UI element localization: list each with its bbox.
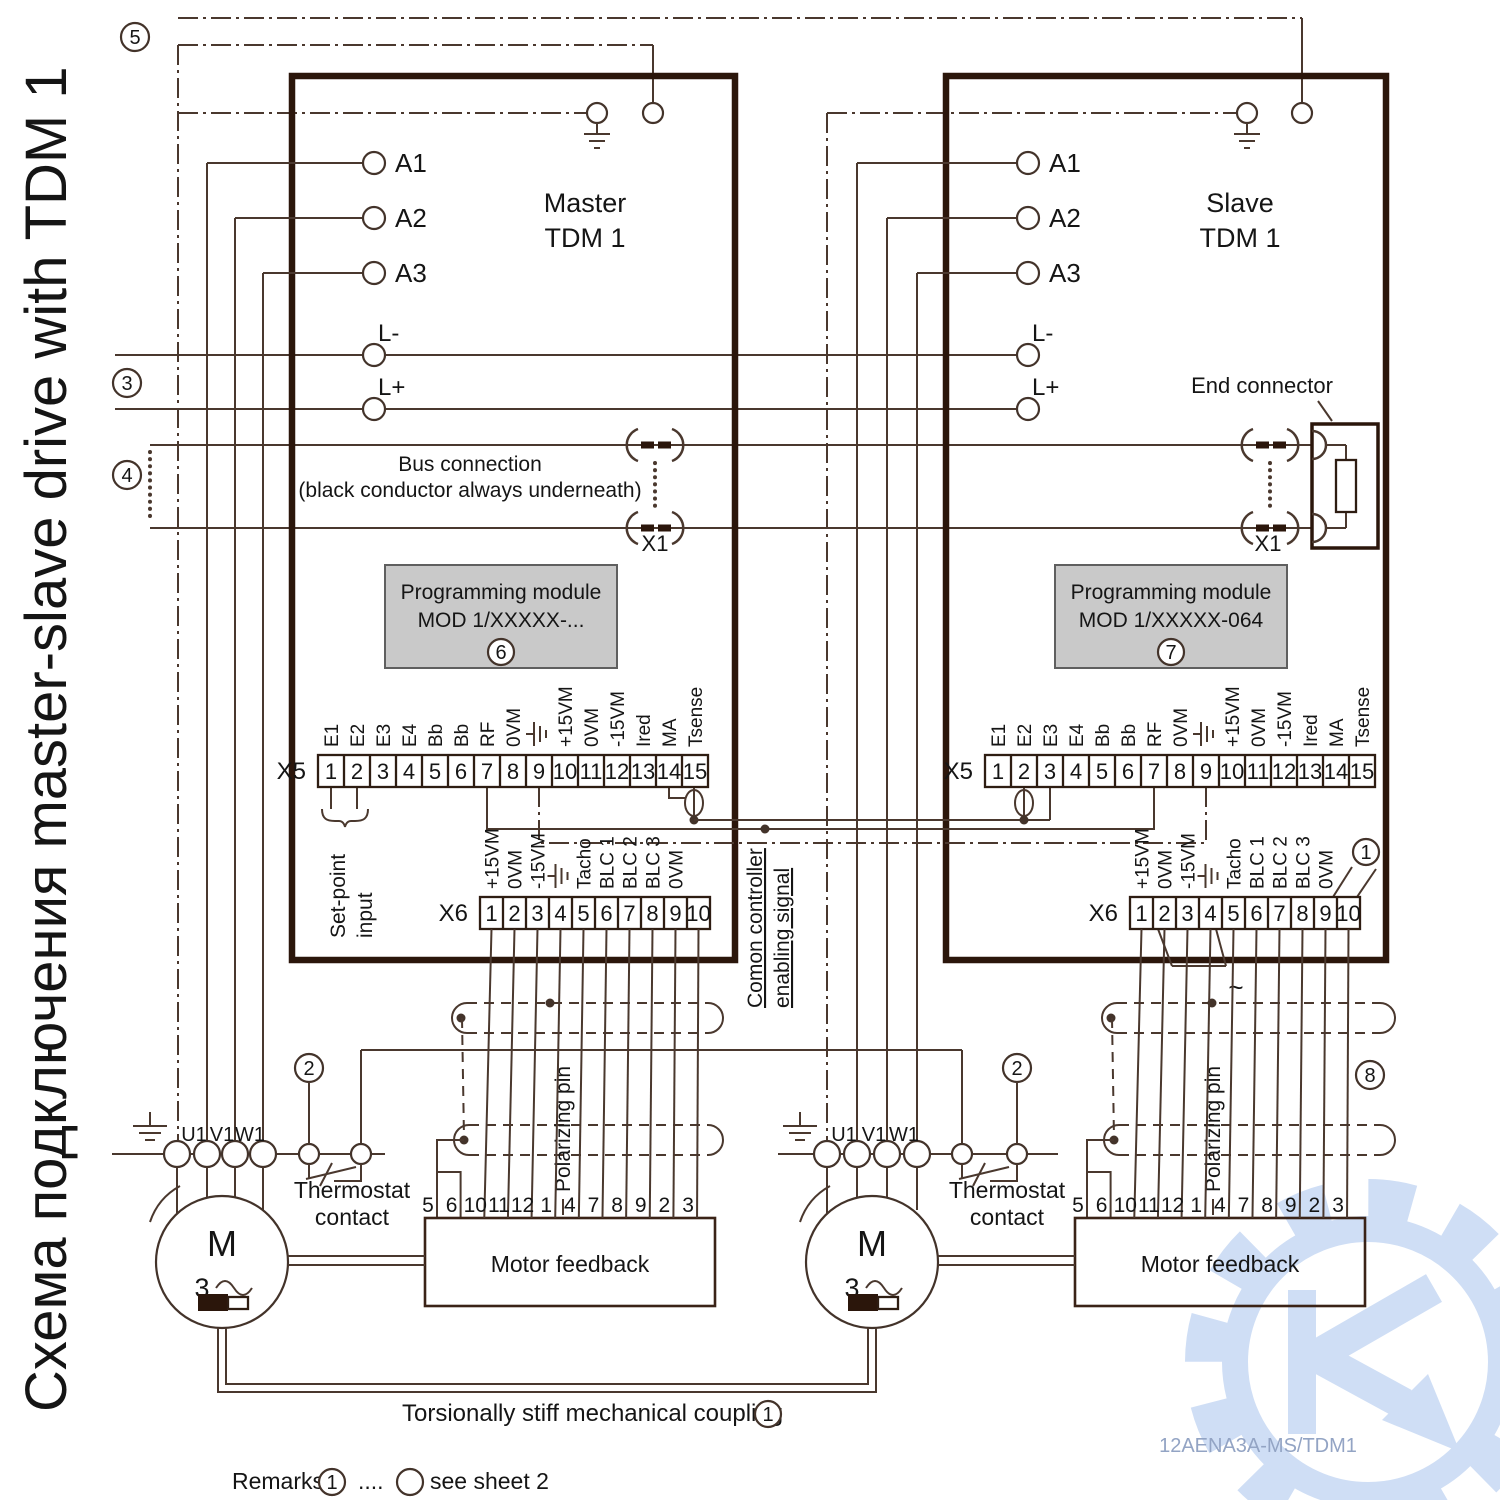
note-badge-1-text: 1 (1360, 842, 1371, 864)
master-x5-strip-signal-label: -15VM (608, 691, 629, 747)
slave-feedback-pins-pin-number: 9 (1285, 1194, 1297, 1217)
master-feedback-pins-pin-number: 5 (422, 1194, 434, 1217)
slave-box-title: Slave (1206, 188, 1274, 218)
note-badge-1-text: 1 (326, 1472, 337, 1494)
master-x6-strip-signal-label: -15VM (529, 833, 550, 889)
feedback-wire (1182, 929, 1188, 1218)
master-x5-strip-signal-label: E4 (400, 723, 421, 747)
bus-note-line2: (black conductor always underneath) (298, 479, 641, 502)
slave-x5-strip-signal-label: Bb (1093, 724, 1114, 747)
motor-m: M (207, 1223, 237, 1264)
slave-input-wiring (857, 163, 1017, 1141)
slave-feedback-pins-pin-number: 4 (1214, 1194, 1226, 1217)
slave-x5-strip-signal-label: E1 (989, 724, 1010, 747)
master-feedback-pins-pin-number: 3 (682, 1194, 694, 1217)
slave-x5-strip-signal-label: 0VM (1249, 708, 1270, 747)
master-x6-strip-name: X6 (439, 900, 468, 927)
module-model: MOD 1/XXXXX-... (418, 609, 585, 632)
master-feedback-pins-pin-number: 7 (588, 1194, 600, 1217)
note-badge-6-text: 6 (495, 642, 506, 664)
motor-connector-icon (878, 1297, 898, 1309)
master-x5-strip-pin-number: 9 (533, 759, 545, 784)
remarks-label: Remarks (232, 1468, 324, 1494)
note-badge-5-text: 5 (129, 27, 140, 49)
master-x5-strip-name: X5 (277, 758, 306, 785)
master-feedback-pins-pin-number: 10 (464, 1194, 487, 1217)
master-x6-strip-pin-number: 6 (600, 901, 612, 926)
terminal-label-a3: A3 (1049, 258, 1081, 288)
master-x5-strip-signal-label: E1 (322, 724, 343, 747)
slave-x5-strip-pin-number: 14 (1324, 759, 1348, 784)
master-x5-strip-pin-number: 11 (580, 759, 603, 784)
feedback-wire (484, 929, 491, 1218)
slave-feedback-pins-pin-number: 10 (1114, 1194, 1137, 1217)
terminal-label-a3: A3 (395, 258, 427, 288)
master-x6-strip-pin-number: 1 (485, 901, 497, 926)
master-x5-strip-pin-number: 2 (351, 759, 363, 784)
phase-label-v1: V1 (862, 1124, 886, 1146)
note-badge-2-text: 2 (303, 1058, 314, 1080)
master-drive-box (292, 76, 735, 960)
phase-label-u1: U1 (181, 1124, 207, 1146)
master-x5-strip-pin-number: 1 (325, 759, 337, 784)
master-x5-strip-pin-number: 14 (657, 759, 681, 784)
master-x5-strip-signal-label: E2 (348, 724, 369, 747)
slave-programming-module: Programming module MOD 1/XXXXX-064 7 (1055, 565, 1287, 668)
slave-x5-strip-pin-number: 8 (1174, 759, 1186, 784)
feedback-wire (1252, 929, 1256, 1218)
slave-feedback-label: Motor feedback (1141, 1251, 1300, 1277)
slave-x5-strip-signal-label: +15VM (1223, 686, 1244, 747)
master-x6-strip-signal-label: BLC 1 (598, 836, 619, 889)
master-x6-strip-pin-number: 8 (646, 901, 658, 926)
master-x6-strip-signal-label: Tacho (575, 838, 596, 889)
module-model: MOD 1/XXXXX-064 (1079, 609, 1264, 632)
ground-icon (1234, 123, 1260, 148)
slave-x5-strip-pin-number: 9 (1200, 759, 1212, 784)
slave-x1-connector: X1 (1242, 429, 1299, 556)
master-box-title: Master (544, 188, 627, 218)
master-x5-strip-pin-number: 15 (683, 759, 707, 784)
thermostat-label-line2: contact (970, 1204, 1045, 1230)
slave-x5-strip-signal-label: Ired (1301, 714, 1322, 747)
master-x5-strip-signal-label: 0VM (582, 708, 603, 747)
slave-x5-strip-signal-label: E3 (1041, 724, 1062, 747)
module-title: Programming module (401, 581, 602, 604)
logo-arm-up (1316, 1288, 1434, 1356)
thermostat-label-line2: contact (315, 1204, 390, 1230)
master-x5-strip-pin-number: 13 (631, 759, 655, 784)
slave-x5-strip-signal-label: E2 (1015, 724, 1036, 747)
master-x5-strip-signal-label: Bb (452, 724, 473, 747)
master-pe-terminals (584, 103, 663, 148)
feedback-wire (532, 929, 538, 1218)
note-badge-3-text: 3 (121, 373, 132, 395)
master-x5-strip-pin-number: 12 (605, 759, 629, 784)
slave-x5-strip-signal-label: RF (1145, 722, 1166, 747)
ground-icon (584, 123, 610, 148)
master-x6-strip-pin-number: 4 (554, 901, 566, 926)
slave-x6-strip-pin-number: 7 (1273, 901, 1285, 926)
master-feedback-pins-pin-number: 2 (659, 1194, 671, 1217)
feedback-wire (626, 929, 629, 1218)
slave-x5-strip-pin-number: 12 (1272, 759, 1296, 784)
master-feedback-pins-pin-number: 4 (564, 1194, 576, 1217)
thermostat-label-line1: Thermostat (294, 1177, 411, 1203)
remarks-dots: .... (358, 1468, 384, 1494)
motor-m: M (857, 1223, 887, 1264)
slave-x5-strip-pin-number: 4 (1070, 759, 1082, 784)
master-feedback-label: Motor feedback (491, 1251, 650, 1277)
remarks-see-sheet: see sheet 2 (430, 1468, 549, 1494)
ground-icon (783, 1112, 817, 1140)
feedback-wire (602, 929, 606, 1218)
slave-x5-strip-pin-number: 2 (1018, 759, 1030, 784)
slave-x5-strip-name: X5 (944, 758, 973, 785)
slave-x5-strip-pin-number: 15 (1350, 759, 1374, 784)
slave-x5-strip-pin-number: 1 (992, 759, 1004, 784)
master-x5-strip-signal-label: +15VM (556, 686, 577, 747)
logo-arm-down (1316, 1356, 1404, 1404)
note-badge-7-text: 7 (1165, 642, 1176, 664)
slave-x5-strip-signal-label: E4 (1067, 723, 1088, 747)
slave-feedback-pins-pin-number: 5 (1072, 1194, 1084, 1217)
motor-connector-icon (198, 1294, 228, 1311)
slave-feedback-pins-pin-number: 2 (1309, 1194, 1321, 1217)
terminal-label-a2: A2 (1049, 203, 1081, 233)
slave-feedback-pins-pin-number: 7 (1238, 1194, 1250, 1217)
note-badge-1-text: 1 (762, 1404, 773, 1426)
master-x6-strip-signal-label: 0VM (506, 850, 527, 889)
master-x6-strip-pin-number: 10 (686, 901, 710, 926)
logo-bar (1288, 1290, 1316, 1434)
slave-feedback-pins-pin-number: 11 (1138, 1194, 1160, 1217)
slave-x5-strip-signal-label: MA (1327, 718, 1348, 747)
slave-x6-strip-signal-label: -15VM (1179, 833, 1200, 889)
phase-label-w1: W1 (889, 1124, 919, 1146)
slave-x6-strip-signal-label: BLC 2 (1271, 836, 1292, 889)
master-x5-strip-signal-label: RF (478, 722, 499, 747)
feedback-wire (697, 929, 698, 1218)
terminal-label-a1: A1 (395, 148, 427, 178)
end-connector-leader (1318, 401, 1332, 421)
master-x6-strip-signal-label: +15VM (483, 828, 504, 889)
feedback-wire (1300, 929, 1303, 1218)
slave-x6-strip-pin-number: 6 (1250, 901, 1262, 926)
slave-x5-strip-pin-number: 6 (1122, 759, 1134, 784)
master-x5-strip-signal-label: E3 (374, 724, 395, 747)
master-x6-strip-signal-label: BLC 2 (621, 836, 642, 889)
document-number: 12AENA3A-MS/TDM1 (1159, 1435, 1357, 1457)
slave-x6-strip-signal-label: 0VM (1317, 850, 1338, 889)
motor-connector-icon (228, 1297, 248, 1309)
feedback-wire (1158, 929, 1165, 1218)
slave-x5-strip-pin-number: 3 (1044, 759, 1056, 784)
slave-x6-strip-signal-label: 0VM (1156, 850, 1177, 889)
feedback-wire (1323, 929, 1325, 1218)
controller-signal-label-line1: Comon controller (744, 848, 767, 1008)
note-badge-4-text: 4 (121, 465, 132, 487)
end-connector-label: End connector (1191, 373, 1333, 398)
master-x5-strip-signal-label: Ired (634, 714, 655, 747)
terminal-label-lminus: L- (378, 320, 399, 347)
master-x5-strip-pin-number: 4 (403, 759, 415, 784)
feedback-wire (1276, 929, 1279, 1218)
master-x5-strip-pin-number: 7 (481, 759, 493, 784)
setpoint-brace (322, 809, 368, 827)
schematic-page: Схема подключения master-slave drive wit… (0, 0, 1500, 1500)
phase-label-w1: W1 (235, 1124, 265, 1146)
master-x5-strip-pin-number: 10 (553, 759, 577, 784)
footer: Torsionally stiff mechanical coupling 1 … (232, 1400, 1357, 1495)
master-x5-strip-signal-label: MA (660, 718, 681, 747)
slave-x5-strip-pin-number: 11 (1247, 759, 1270, 784)
feedback-wire (1347, 929, 1348, 1218)
slave-x6-strip-signal-label: +15VM (1133, 828, 1154, 889)
master-x5-strip-signal-label: Bb (426, 724, 447, 747)
master-programming-module: Programming module MOD 1/XXXXX-... 6 (385, 565, 617, 668)
master-x6-strip-pin-number: 5 (577, 901, 589, 926)
slave-feedback-pins-pin-number: 8 (1261, 1194, 1273, 1217)
slave-feedback-pins-pin-number: 3 (1332, 1194, 1344, 1217)
slave-x5-strip-signal-label: 0VM (1171, 708, 1192, 747)
slave-x5-strip-pin-number: 13 (1298, 759, 1322, 784)
slave-x5-strip-pin-number: 10 (1220, 759, 1244, 784)
slave-feedback-pins-pin-number: 1 (1190, 1194, 1202, 1217)
slave-x5-strip-signal-label: Bb (1119, 724, 1140, 747)
slave-x6-strip-signal-label: BLC 3 (1294, 836, 1315, 889)
note-badge-2-text: 2 (1011, 1058, 1022, 1080)
feedback-wire (650, 929, 653, 1218)
slave-x6-strip-signal-label: Tacho (1225, 838, 1246, 889)
setpoint-label-line2: input (354, 892, 377, 938)
master-x5-strip-pin-number: 5 (429, 759, 441, 784)
bus-note-line1: Bus connection (398, 453, 542, 476)
page-title-vertical: Схема подключения master-slave drive wit… (14, 66, 79, 1412)
controller-signal-label-line2: enabling signal (771, 868, 794, 1008)
slave-x6-strip-pin-number: 2 (1158, 901, 1170, 926)
slave-x5-strip-pin-number: 7 (1148, 759, 1160, 784)
master-feedback-pins-pin-number: 11 (488, 1194, 510, 1217)
thermostat-label-line1: Thermostat (949, 1177, 1066, 1203)
master-x6-strip-pin-number: 7 (623, 901, 635, 926)
note-badge-8-text: 8 (1364, 1065, 1375, 1087)
terminal-label-lplus: L+ (1032, 374, 1059, 401)
module-title: Programming module (1071, 581, 1272, 604)
slave-box-subtitle: TDM 1 (1200, 223, 1281, 253)
master-x5-strip-signal-label: 0VM (504, 708, 525, 747)
slave-x5-strip-signal-label: -15VM (1275, 691, 1296, 747)
terminal-label-a1: A1 (1049, 148, 1081, 178)
slave-x6-strip-pin-number: 1 (1135, 901, 1147, 926)
slave-x6-strip-pin-number: 3 (1181, 901, 1193, 926)
setpoint-label-line1: Set-point (327, 854, 350, 938)
master-x5-strip-signal-label: Tsense (686, 687, 707, 747)
slave-x5-strip-signal-label: Tsense (1353, 687, 1374, 747)
master-x6-strip-pin-number: 2 (508, 901, 520, 926)
master-x6-strip: 12345678910+15VM0VM-15VMTachoBLC 1BLC 2B… (439, 828, 711, 929)
slave-x6-strip-pin-number: 4 (1204, 901, 1216, 926)
phase-label-v1: V1 (210, 1124, 234, 1146)
master-feedback-pins-pin-number: 1 (540, 1194, 552, 1217)
phase-label-u1: U1 (831, 1124, 857, 1146)
master-x5-strip-pin-number: 6 (455, 759, 467, 784)
master-x6-strip-pin-number: 3 (531, 901, 543, 926)
master-x6-strip-signal-label: BLC 3 (644, 836, 665, 889)
end-connector: End connector (1191, 373, 1378, 548)
feedback-wire (1134, 929, 1141, 1218)
coupling-caption: Torsionally stiff mechanical coupling (402, 1400, 783, 1427)
schematic-canvas: Схема подключения master-slave drive wit… (0, 0, 1500, 1500)
master-feedback-pins-pin-number: 9 (635, 1194, 647, 1217)
slave-x6-strip-pin-number: 10 (1336, 901, 1360, 926)
ground-icon (133, 1112, 167, 1140)
slave-x5-strip-pin-number: 5 (1096, 759, 1108, 784)
slave-x6-strip-name: X6 (1089, 900, 1118, 927)
terminal-label-a2: A2 (395, 203, 427, 233)
x1-label: X1 (642, 531, 669, 556)
master-x5-strip-pin-number: 3 (377, 759, 389, 784)
master-feedback-pins-pin-number: 12 (511, 1194, 534, 1217)
master-feedback-pins-pin-number: 8 (611, 1194, 623, 1217)
terminating-resistor (1336, 460, 1356, 512)
master-x6-strip-pin-number: 9 (669, 901, 681, 926)
slave-feedback-pins-pin-number: 12 (1161, 1194, 1184, 1217)
feedback-wire (673, 929, 675, 1218)
slave-x5-strip: 123456789101112131415E1E2E3E4BbBbRF0VM+1… (944, 686, 1375, 787)
tacho-ac-symbol: ~ (1228, 972, 1243, 1002)
master-x5-strip: 123456789101112131415E1E2E3E4BbBbRF0VM+1… (277, 686, 708, 787)
slave-pe-terminals (1234, 103, 1312, 148)
feedback-wire (579, 929, 584, 1218)
master-x6-strip-signal-label: 0VM (667, 850, 688, 889)
slave-x6-strip-signal-label: BLC 1 (1248, 836, 1269, 889)
x5-interconnect-wiring (322, 787, 1206, 843)
master-x5-strip-pin-number: 8 (507, 759, 519, 784)
terminal-label-lplus: L+ (378, 374, 405, 401)
x1-label: X1 (1255, 531, 1282, 556)
terminal-label-lminus: L- (1032, 320, 1053, 347)
slave-terminals: A1 A2 A3 L- L+ (1017, 148, 1081, 420)
master-box-subtitle: TDM 1 (545, 223, 626, 253)
master-terminals: A1 A2 A3 L- L+ (363, 148, 427, 420)
slave-motor-group: U1 V1 W1 M 3 2 Thermostat contact (778, 1054, 1066, 1328)
master-feedback-pins-pin-number: 6 (446, 1194, 458, 1217)
slave-x6-strip-pin-number: 8 (1296, 901, 1308, 926)
master-input-wiring (207, 163, 363, 1141)
master-motor-group: U1 V1 W1 M 3 2 Thermostat contact (112, 1054, 411, 1328)
slave-feedback-pins-pin-number: 6 (1096, 1194, 1108, 1217)
remark-empty-circle (397, 1469, 423, 1495)
motor-connector-icon (848, 1294, 878, 1311)
slave-x6-strip-pin-number: 5 (1227, 901, 1239, 926)
slave-x6-strip-pin-number: 9 (1319, 901, 1331, 926)
feedback-wire (508, 929, 515, 1218)
